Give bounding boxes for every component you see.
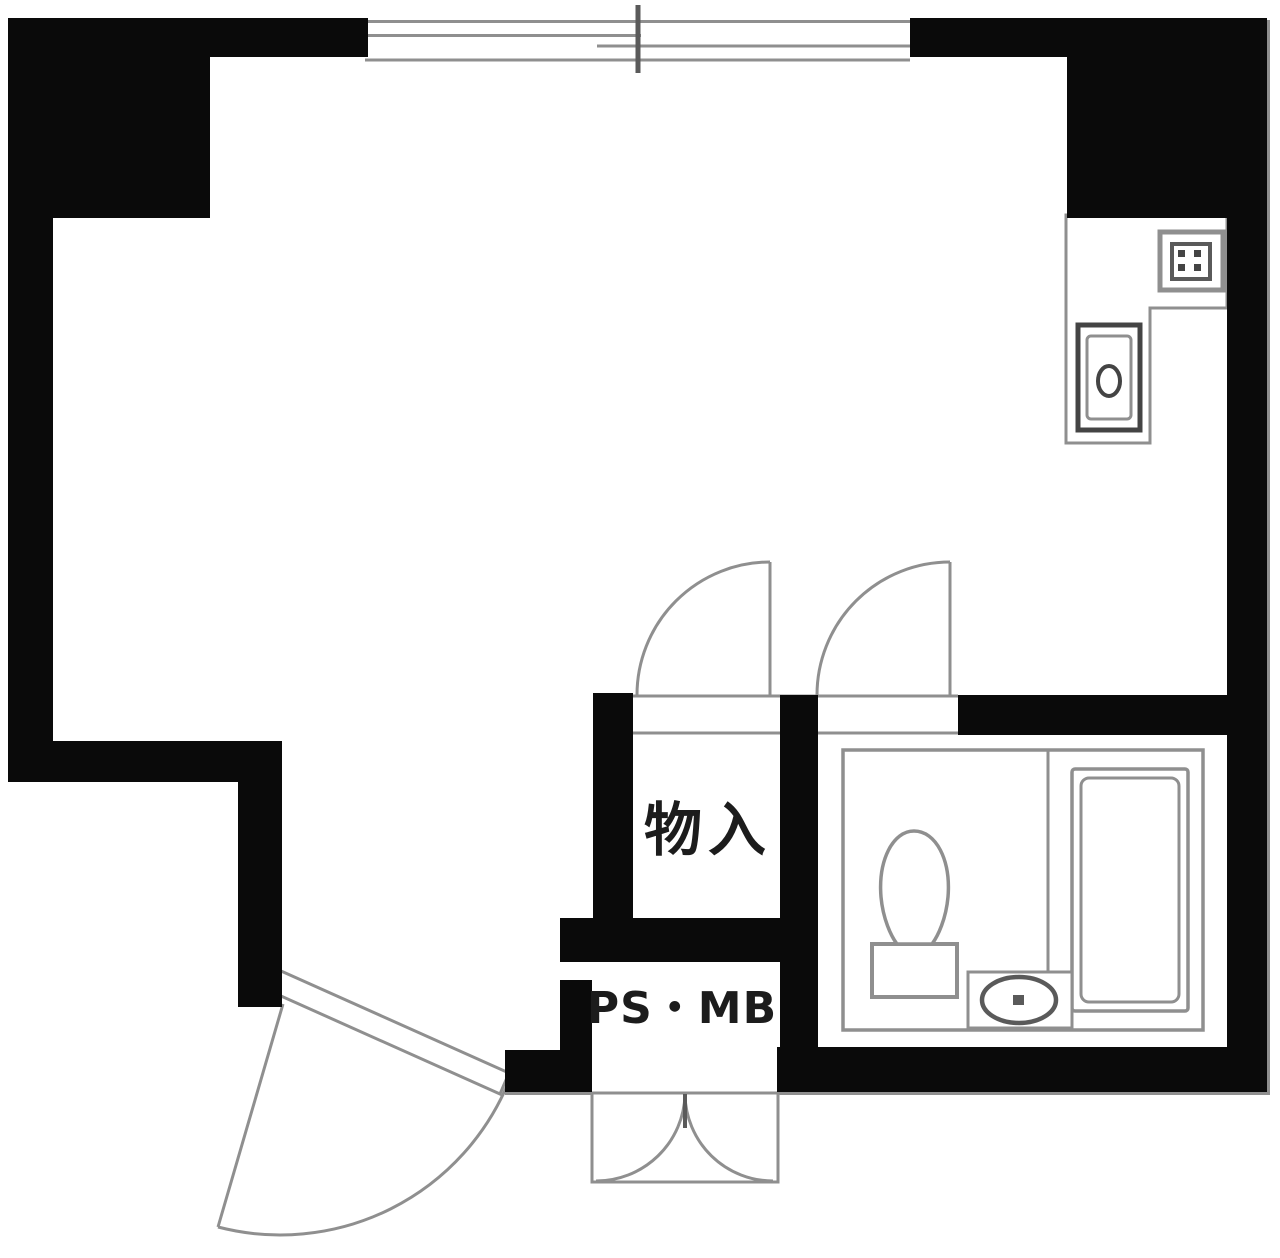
toilet-bowl <box>881 831 949 944</box>
stove-icon <box>1160 232 1223 290</box>
wall-closet-bottom <box>560 918 780 962</box>
sink-drain <box>1098 366 1120 396</box>
floor-plan-drawing: 物入 PS・MB <box>0 0 1280 1258</box>
toilet-icon <box>872 831 957 997</box>
bathroom-door <box>817 562 950 695</box>
stove-burner-dot <box>1194 250 1201 257</box>
stove-inner-frame <box>1172 244 1210 279</box>
sliding-window-icon <box>365 5 910 73</box>
stove-burner-dot <box>1194 264 1201 271</box>
wall-door-landing-nub <box>505 1050 560 1092</box>
washbasin-icon <box>968 972 1072 1028</box>
stove-burner-dot <box>1178 264 1185 271</box>
toilet-tank <box>872 944 957 997</box>
bathtub-inner <box>1081 778 1179 1002</box>
door-swing-arc-icon <box>637 562 770 695</box>
bathtub-icon <box>1072 769 1188 1011</box>
ps-mb-doors <box>592 1093 778 1182</box>
kitchen-counter <box>1066 215 1227 443</box>
closet-label: 物入 <box>644 796 772 864</box>
entrance-door-leaf <box>272 971 509 1094</box>
door-swing-arc-icon <box>817 562 950 695</box>
kitchen-sink-icon <box>1078 325 1140 430</box>
wall-top-band-left <box>8 18 368 57</box>
wall-bathroom-bottom <box>777 1047 1267 1092</box>
floor-plan: 物入 PS・MB <box>0 0 1280 1258</box>
wall-right <box>1227 18 1267 1092</box>
stove-burner-dot <box>1178 250 1185 257</box>
bathroom <box>843 750 1203 1030</box>
washbasin-drain <box>1013 995 1024 1005</box>
entrance-door-open-line <box>218 1004 283 1227</box>
ps-mb-label: PS・MB <box>587 983 777 1034</box>
closet-door <box>637 562 770 695</box>
wall-entry-jamb <box>238 741 282 1007</box>
wall-closet-bathroom-divider <box>780 695 818 1092</box>
wall-left <box>8 18 53 782</box>
door-swing-arc-icon <box>218 1081 509 1235</box>
entrance-door <box>218 971 509 1235</box>
wall-bathroom-top <box>958 695 1227 735</box>
